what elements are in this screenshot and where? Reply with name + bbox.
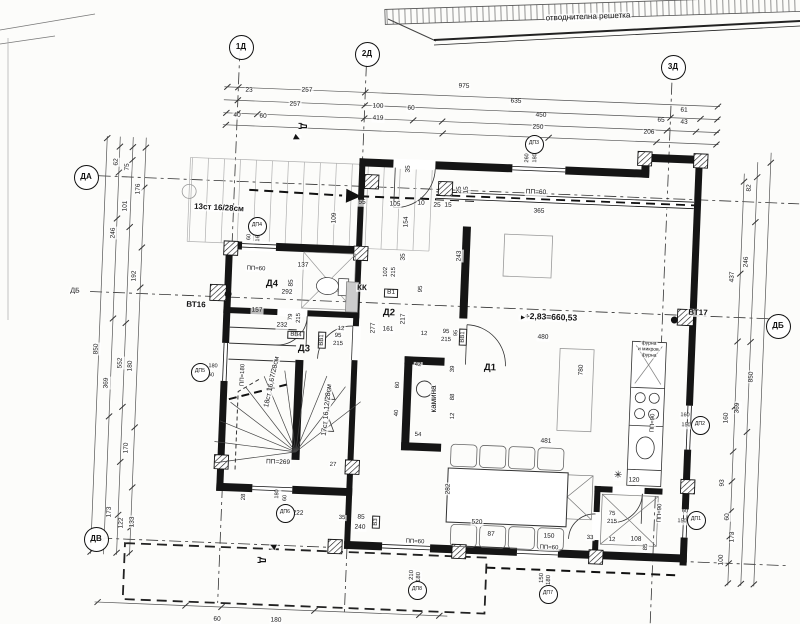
dim-label: 85 xyxy=(356,515,365,522)
dim-label: 35 xyxy=(338,515,347,521)
dim-label: 250 xyxy=(531,125,544,132)
dim-label: 39 xyxy=(450,365,456,374)
annotation: ПП=269 xyxy=(265,459,291,466)
dim-label: 15 xyxy=(464,185,471,194)
dim-label: 133 xyxy=(130,515,137,528)
dim-label: 40 xyxy=(232,113,241,120)
floor-plan: 2325797525710060635614060419450654325020… xyxy=(0,0,800,624)
dim-label: 369 xyxy=(104,376,111,389)
dim-label: 87 xyxy=(486,532,495,539)
opening-tag: ДП6 xyxy=(276,504,295,523)
dim-label: 12 xyxy=(608,537,617,543)
axis-label: ДБ xyxy=(69,287,81,294)
dim-label: 15 xyxy=(443,203,452,210)
opening-tag: ДП1 xyxy=(687,511,706,530)
dim-label: 173 xyxy=(107,505,114,518)
dim-label: 552 xyxy=(118,356,125,369)
dim-label: 154 xyxy=(404,215,411,228)
dim-label: 95 xyxy=(418,285,424,294)
dim-label: 60 xyxy=(395,381,401,390)
dim-label: 240 xyxy=(353,525,366,532)
section-arrow-icon: ▶ xyxy=(268,541,279,552)
dim-label: 150 xyxy=(676,519,687,525)
room-label: Д1 xyxy=(483,363,497,373)
dim-label: 150 xyxy=(539,572,545,584)
dim-label: 105 xyxy=(388,202,401,209)
dim-label: 217 xyxy=(401,312,408,325)
dim-label: 260 xyxy=(525,152,531,163)
dim-label: 192 xyxy=(132,269,139,282)
dim-label: 95 xyxy=(334,333,343,339)
door-tag: ВВ1 xyxy=(459,328,468,346)
dim-label: 33 xyxy=(586,535,595,541)
dim-label: 25 xyxy=(432,203,441,210)
dim-label: 65 xyxy=(656,118,665,125)
dim-label: 160 xyxy=(724,411,731,424)
dim-label: 12 xyxy=(337,326,346,332)
dim-label: 215 xyxy=(332,341,344,347)
dim-label: 43 xyxy=(679,120,688,127)
dim-label: 85 xyxy=(643,543,649,552)
dim-label: 79 xyxy=(288,313,294,322)
opening-tag: ДП2 xyxy=(691,416,710,435)
dim-label: 170 xyxy=(124,441,131,454)
dim-label: 850 xyxy=(749,370,756,383)
grid-marker: 1Д xyxy=(229,35,254,60)
vent-shaft-label: ВТ16 xyxy=(185,301,207,310)
dim-label: 180 xyxy=(533,152,539,163)
dim-label: 60 xyxy=(212,617,221,624)
annotation: ПП=90 xyxy=(650,412,657,433)
plan-labels: 2325797525710060635614060419450654325020… xyxy=(0,0,800,624)
dim-label: 12 xyxy=(450,412,456,421)
dim-label: 35 xyxy=(406,164,413,173)
dim-label: 232 xyxy=(275,323,288,330)
door-tag: ВВ1 xyxy=(318,331,327,349)
dim-label: 277 xyxy=(371,321,378,334)
dim-label: 93 xyxy=(720,478,727,487)
dim-label: 160 xyxy=(679,413,690,419)
dim-label: 54 xyxy=(414,432,423,438)
stair-note: 18ст 16,67/28см xyxy=(263,355,281,409)
dim-label: 60 xyxy=(283,494,289,502)
section-arrow-icon: ▶ xyxy=(292,133,303,144)
annotation: ПП=60 xyxy=(245,266,266,273)
dim-label: 520 xyxy=(470,520,483,527)
door-tag: ВВ4 xyxy=(287,331,305,340)
dim-label: 246 xyxy=(744,255,751,268)
dim-label: 10 xyxy=(416,201,425,208)
duct-label: КК xyxy=(356,284,368,292)
dim-label: 55 xyxy=(357,200,366,207)
dim-label: 450 xyxy=(534,113,547,120)
dim-label: 419 xyxy=(371,116,384,123)
opening-tag: ДП5 xyxy=(191,363,210,382)
dim-label: 60 xyxy=(406,106,415,113)
dim-label: 975 xyxy=(457,84,470,91)
dim-label: 180 xyxy=(275,488,281,499)
dim-label: 635 xyxy=(509,99,522,106)
section-letter: Д xyxy=(299,122,308,130)
dim-label: 82 xyxy=(747,183,754,192)
dim-label: 75 xyxy=(125,162,132,171)
grid-marker: 2Д xyxy=(355,42,380,67)
elevation-flag-icon: ► xyxy=(518,314,527,321)
dim-label: 35 xyxy=(401,252,408,261)
opening-tag: ДП3 xyxy=(525,135,544,154)
door-tag: В1 xyxy=(384,289,398,298)
opening-tag: ДП8 xyxy=(408,581,427,600)
dim-label: 161 xyxy=(381,327,394,334)
dim-label: 157 xyxy=(250,308,263,315)
dim-label: 75 xyxy=(608,511,617,517)
opening-tag: ДП7 xyxy=(539,585,558,604)
annotation: ПП=60 xyxy=(538,545,559,552)
dim-label: 42 xyxy=(414,362,423,368)
dim-label: 243 xyxy=(457,249,464,262)
grid-marker: ДВ xyxy=(84,527,109,552)
dim-label: 257 xyxy=(300,88,313,95)
dim-label: 12 xyxy=(420,331,429,337)
annotation: ПП=90 xyxy=(657,502,664,523)
grid-marker: 3Д xyxy=(661,55,686,80)
shaft-mark: ✳ xyxy=(613,471,624,481)
dim-label: 108 xyxy=(629,537,642,544)
fireplace-label: камина xyxy=(430,385,438,414)
room-label: Д4 xyxy=(265,279,279,289)
dim-label: 61 xyxy=(679,108,688,115)
dim-label: 27 xyxy=(329,462,338,468)
dim-label: 120 xyxy=(627,478,640,485)
dim-label: 60 xyxy=(258,114,267,121)
dim-label: 480 xyxy=(536,335,549,342)
dim-label: 246 xyxy=(111,226,118,239)
dim-label: 292 xyxy=(280,290,293,297)
dim-label: 150 xyxy=(680,423,691,429)
dim-label: 215 xyxy=(440,337,452,343)
site-note: отводнителна решетка xyxy=(545,11,632,22)
dim-label: 180 xyxy=(128,359,135,372)
dim-label: 100 xyxy=(719,553,726,566)
dim-label: 102 xyxy=(383,266,389,278)
dim-label: 365 xyxy=(532,209,545,216)
dim-label: 100 xyxy=(371,104,384,111)
dim-label: 88 xyxy=(450,393,456,402)
dim-label: 850 xyxy=(94,342,101,355)
dim-label: 215 xyxy=(606,519,618,525)
dim-label: 257 xyxy=(288,102,301,109)
dim-label: 176 xyxy=(136,182,143,195)
dim-label: 210 xyxy=(409,569,415,581)
opening-tag: ДП4 xyxy=(248,217,267,236)
dim-label: 215 xyxy=(391,266,397,278)
dim-label: 173 xyxy=(730,530,737,543)
dim-label: 101 xyxy=(123,199,130,212)
grid-marker: ДА xyxy=(74,165,99,190)
dim-label: 437 xyxy=(730,270,737,283)
dim-label: 150 xyxy=(542,534,555,541)
dim-label: 780 xyxy=(579,363,586,376)
room-label: Д3 xyxy=(297,344,311,354)
dim-label: 180 xyxy=(269,618,282,624)
kitchen-note: фурна xyxy=(641,353,658,359)
dim-label: 206 xyxy=(642,130,655,137)
dim-label: 282 xyxy=(446,482,453,495)
dim-label: 137 xyxy=(296,263,309,270)
annotation: ПП=180 xyxy=(240,363,247,387)
vent-shaft-label: ВТ17 xyxy=(687,309,709,318)
dim-label: 60 xyxy=(725,512,732,521)
dim-label: 62 xyxy=(114,157,121,166)
annotation: ПП=60 xyxy=(404,539,425,546)
dim-label: 28 xyxy=(241,493,247,502)
section-letter: Д xyxy=(258,556,267,564)
dim-label: 481 xyxy=(539,439,552,446)
stair-note: 13ст 16/28см xyxy=(193,203,245,214)
grid-marker: ДБ xyxy=(766,314,791,339)
dim-label: 122 xyxy=(119,516,126,529)
stair-note: 17ст 16,12/28см xyxy=(321,383,334,437)
dim-label: 109 xyxy=(332,211,339,224)
dim-label: 215 xyxy=(296,312,302,324)
annotation: ПП=60 xyxy=(525,189,548,196)
room-label: Д2 xyxy=(382,308,396,318)
dim-label: 23 xyxy=(244,88,253,95)
dim-label: 40 xyxy=(394,409,400,418)
dim-label: 95 xyxy=(442,329,451,335)
elevation-note: +2,83=660,53 xyxy=(524,312,579,322)
door-tag: В3 xyxy=(372,515,380,529)
dim-label: 369 xyxy=(735,401,742,414)
dim-label: 85 xyxy=(289,278,296,287)
